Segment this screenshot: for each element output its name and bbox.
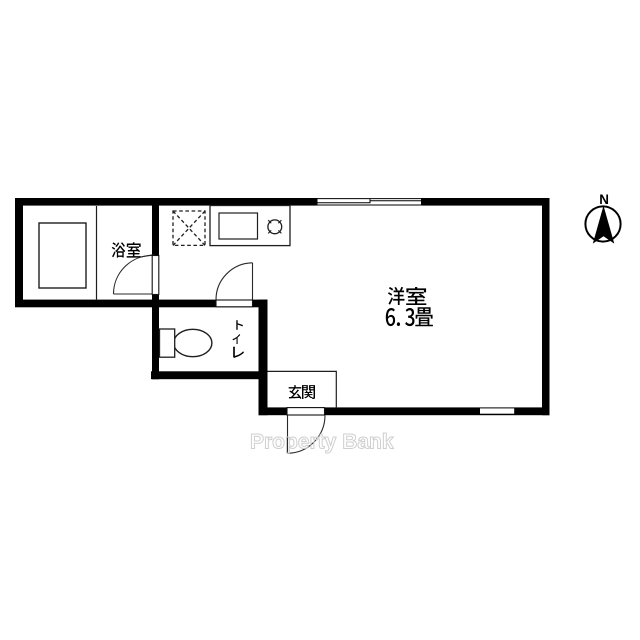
svg-text:N: N [599, 192, 609, 207]
svg-text:Property Bank: Property Bank [250, 431, 394, 454]
